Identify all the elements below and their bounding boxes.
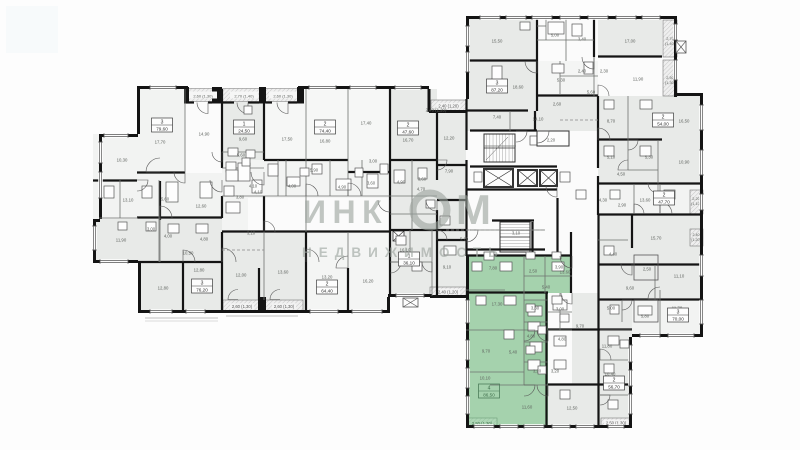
svg-text:3: 3	[677, 309, 680, 315]
svg-text:3: 3	[496, 80, 499, 86]
svg-text:2,60 (1,30): 2,60 (1,30)	[193, 94, 213, 99]
svg-text:7,80: 7,80	[489, 266, 498, 271]
svg-text:5,30: 5,30	[645, 155, 654, 160]
svg-text:12,20: 12,20	[444, 136, 455, 141]
svg-text:4,90: 4,90	[338, 185, 347, 190]
svg-text:2,60 (1,30): 2,60 (1,30)	[273, 94, 293, 99]
svg-text:36,10: 36,10	[403, 260, 415, 265]
svg-text:7,90: 7,90	[445, 169, 454, 174]
svg-text:4,80: 4,80	[527, 334, 536, 339]
svg-text:64,40: 64,40	[321, 288, 333, 293]
svg-text:17,40: 17,40	[361, 121, 372, 126]
svg-text:13,60: 13,60	[640, 198, 651, 203]
svg-text:5,00: 5,00	[551, 33, 560, 38]
svg-text:5,30: 5,30	[557, 78, 566, 83]
svg-text:17,50: 17,50	[282, 137, 293, 142]
svg-text:9,10: 9,10	[443, 265, 452, 270]
svg-text:10,90: 10,90	[679, 160, 690, 165]
svg-text:2: 2	[326, 281, 329, 287]
svg-text:14,90: 14,90	[199, 132, 210, 137]
svg-text:16,70: 16,70	[403, 138, 414, 143]
svg-text:3,30: 3,30	[531, 306, 540, 311]
svg-text:2,50: 2,50	[529, 269, 538, 274]
svg-text:11,60: 11,60	[522, 405, 533, 410]
svg-text:74,40: 74,40	[319, 128, 331, 133]
svg-text:5,80: 5,80	[641, 314, 650, 319]
svg-text:2: 2	[613, 377, 616, 383]
svg-text:5,10: 5,10	[460, 237, 469, 242]
svg-text:2: 2	[663, 192, 666, 198]
svg-text:2,60 (1,30): 2,60 (1,30)	[274, 304, 295, 309]
svg-text:4,30: 4,30	[599, 198, 608, 203]
svg-text:3,80: 3,80	[236, 195, 245, 200]
svg-text:16,80: 16,80	[320, 139, 331, 144]
svg-text:11,80: 11,80	[602, 344, 613, 349]
svg-text:3,00: 3,00	[147, 227, 156, 232]
svg-text:2,40: 2,40	[578, 69, 587, 74]
svg-text:М: М	[456, 186, 491, 233]
svg-text:3,20: 3,20	[551, 369, 560, 374]
svg-text:3,10: 3,10	[247, 231, 256, 236]
svg-text:2,70 (1,40): 2,70 (1,40)	[234, 94, 254, 99]
svg-text:5,60: 5,60	[587, 90, 596, 95]
svg-text:2,40 (1,20): 2,40 (1,20)	[438, 289, 459, 294]
svg-text:4,90: 4,90	[397, 180, 406, 185]
svg-text:5,40: 5,40	[509, 350, 518, 355]
svg-text:5,90: 5,90	[310, 168, 319, 173]
svg-text:11,10: 11,10	[674, 274, 685, 279]
svg-text:11,90: 11,90	[116, 238, 127, 243]
svg-text:3,60: 3,60	[367, 181, 376, 186]
svg-text:13,60: 13,60	[560, 270, 571, 275]
svg-text:11,90: 11,90	[633, 77, 644, 82]
svg-text:17,00: 17,00	[625, 39, 636, 44]
svg-text:13,60: 13,60	[278, 270, 289, 275]
svg-text:1: 1	[243, 121, 246, 127]
svg-text:12,00: 12,00	[236, 273, 247, 278]
svg-text:2,60: 2,60	[553, 102, 562, 107]
svg-text:10,10: 10,10	[480, 376, 491, 381]
svg-text:2,70: 2,70	[666, 37, 673, 41]
svg-text:3,60: 3,60	[418, 177, 427, 182]
svg-text:4,00: 4,00	[164, 234, 173, 239]
svg-text:12,80: 12,80	[158, 286, 169, 291]
svg-text:2,20: 2,20	[692, 197, 699, 201]
svg-text:16,50: 16,50	[679, 119, 690, 124]
svg-text:12,80: 12,80	[194, 268, 205, 273]
svg-text:56,70: 56,70	[608, 384, 620, 389]
svg-text:НЕДВИЖИМОСТЬ: НЕДВИЖИМОСТЬ	[302, 245, 505, 260]
svg-text:17,30: 17,30	[492, 302, 503, 307]
svg-text:2,50: 2,50	[643, 267, 652, 272]
svg-text:2: 2	[324, 121, 327, 127]
svg-text:5,40: 5,40	[542, 285, 551, 290]
svg-text:79,60: 79,60	[156, 126, 168, 131]
svg-text:2,60 (1,30): 2,60 (1,30)	[232, 304, 253, 309]
svg-text:4: 4	[488, 385, 491, 391]
svg-text:4,80: 4,80	[558, 337, 567, 342]
svg-text:3,10: 3,10	[512, 231, 521, 236]
svg-text:4,10: 4,10	[254, 190, 263, 195]
svg-text:47,60: 47,60	[402, 129, 414, 134]
svg-text:2,50: 2,50	[666, 76, 673, 80]
svg-text:3: 3	[161, 119, 164, 125]
svg-text:9,60: 9,60	[239, 137, 248, 142]
svg-text:3,00: 3,00	[369, 159, 378, 164]
svg-text:5,60: 5,60	[161, 197, 170, 202]
svg-text:2,90: 2,90	[618, 203, 627, 208]
svg-text:9,70: 9,70	[482, 349, 491, 354]
svg-text:2,30: 2,30	[600, 69, 609, 74]
svg-text:7,40: 7,40	[493, 115, 502, 120]
svg-text:5,00: 5,00	[607, 306, 616, 311]
svg-text:2,20: 2,20	[547, 138, 556, 143]
svg-text:2,40: 2,40	[693, 233, 700, 237]
svg-text:3,20: 3,20	[533, 369, 542, 374]
svg-text:2: 2	[407, 122, 410, 128]
svg-text:18,60: 18,60	[513, 85, 524, 90]
svg-text:86,50: 86,50	[483, 392, 495, 397]
svg-text:3,00: 3,00	[556, 307, 565, 312]
svg-text:4,00: 4,00	[288, 184, 297, 189]
svg-text:24,50: 24,50	[238, 128, 250, 133]
svg-text:76,20: 76,20	[196, 287, 208, 292]
svg-text:8,70: 8,70	[607, 119, 616, 124]
svg-text:(1,20): (1,20)	[691, 238, 700, 242]
svg-text:10,30: 10,30	[117, 158, 128, 163]
svg-text:13,20: 13,20	[322, 275, 333, 280]
svg-text:14,10: 14,10	[533, 117, 544, 122]
svg-text:4,80: 4,80	[200, 237, 209, 242]
svg-text:54,00: 54,00	[657, 121, 669, 126]
svg-text:9,60: 9,60	[626, 286, 635, 291]
svg-text:16,20: 16,20	[363, 279, 374, 284]
svg-text:12,60: 12,60	[196, 204, 207, 209]
svg-text:9,70: 9,70	[576, 324, 585, 329]
svg-text:70,00: 70,00	[672, 316, 684, 321]
svg-text:13,10: 13,10	[123, 198, 134, 203]
svg-text:47,70: 47,70	[658, 199, 670, 204]
svg-text:4,50: 4,50	[617, 172, 626, 177]
svg-text:4,10: 4,10	[249, 184, 258, 189]
svg-text:12,50: 12,50	[567, 406, 578, 411]
svg-text:5,60: 5,60	[237, 153, 246, 158]
svg-text:87,20: 87,20	[491, 87, 503, 92]
svg-text:15,50: 15,50	[492, 39, 503, 44]
svg-text:2: 2	[662, 114, 665, 120]
svg-text:15,70: 15,70	[651, 236, 662, 241]
svg-text:17,70: 17,70	[155, 140, 166, 145]
svg-text:4,40: 4,40	[609, 252, 618, 257]
svg-text:2,40 (1,20): 2,40 (1,20)	[426, 108, 447, 113]
svg-text:10,50: 10,50	[183, 251, 194, 256]
svg-text:3,40: 3,40	[578, 37, 587, 42]
svg-text:3: 3	[201, 280, 204, 286]
svg-text:5,10: 5,10	[607, 155, 616, 160]
svg-text:ИНК: ИНК	[303, 194, 388, 230]
